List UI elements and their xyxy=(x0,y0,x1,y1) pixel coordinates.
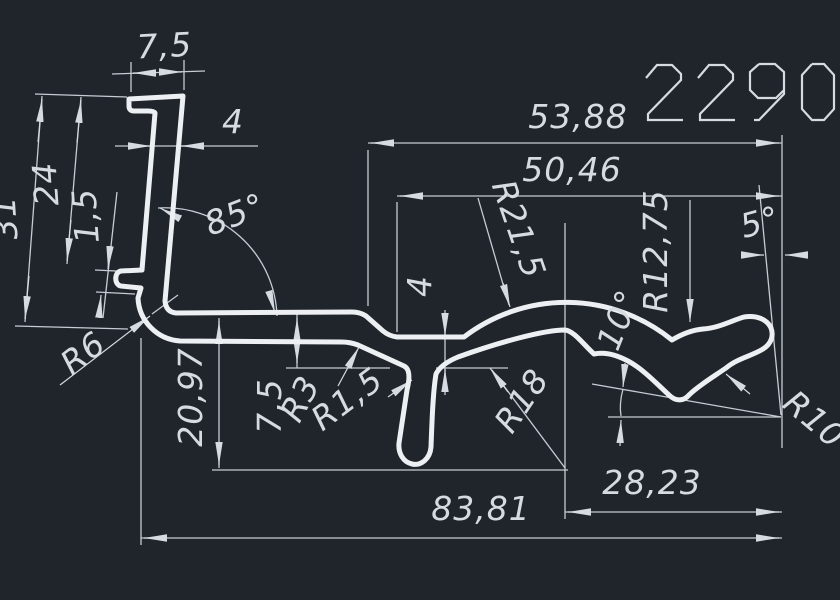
dim-83-81: 83,81 xyxy=(431,489,530,528)
dim-7-5-top: 7,5 xyxy=(136,25,193,67)
part-number-digit xyxy=(698,65,735,120)
dim-20-97: 20,97 xyxy=(171,347,210,446)
rad-12-75: R12,75 xyxy=(636,189,675,312)
rad-6: R6 xyxy=(53,323,113,382)
cad-viewport: 7,5424311,585°53,8850,46R21,5R18R12,755°… xyxy=(0,0,840,600)
ang-5: 5° xyxy=(736,198,784,246)
dim-28-23: 28,23 xyxy=(602,463,701,502)
dim-53-88: 53,88 xyxy=(528,97,627,136)
dim-50-46: 50,46 xyxy=(522,150,621,189)
rad-1-5: R1,5 xyxy=(304,359,391,438)
rad-21-5: R21,5 xyxy=(484,175,554,284)
part-number-digit xyxy=(802,64,834,120)
part-number xyxy=(646,64,834,120)
part-number-digit xyxy=(646,65,683,120)
dim-4-mid: 4 xyxy=(400,275,439,297)
dim-24: 24 xyxy=(25,160,67,207)
rad-18: R18 xyxy=(486,362,556,440)
dim-1-5: 1,5 xyxy=(64,187,107,245)
part-number-digit xyxy=(750,64,784,120)
dim-31: 31 xyxy=(0,194,26,241)
cad-canvas: 7,5424311,585°53,8850,46R21,5R18R12,755°… xyxy=(0,0,840,600)
ang-85: 85° xyxy=(199,185,270,243)
dim-4-top: 4 xyxy=(222,102,244,141)
rad-10: R10 xyxy=(776,382,840,456)
